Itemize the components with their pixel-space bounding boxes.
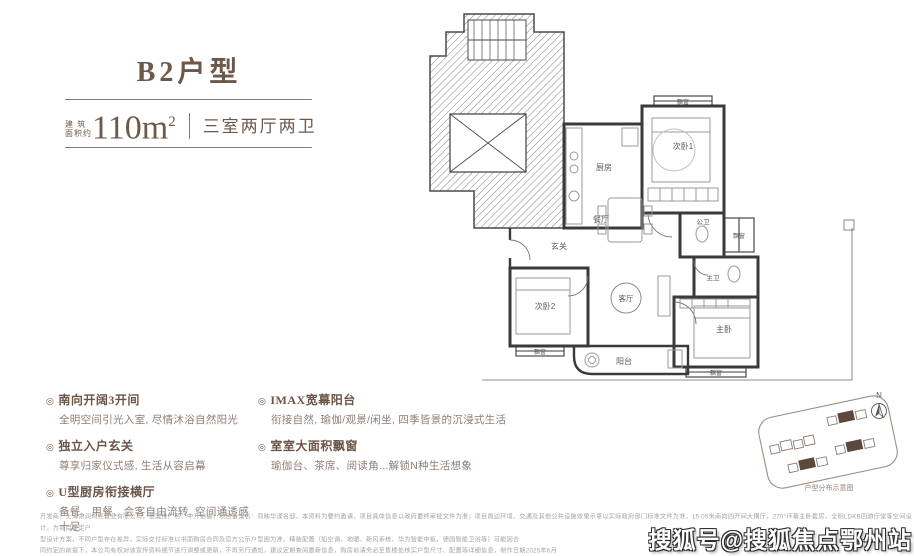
elevator-icon <box>450 114 526 172</box>
building-cluster <box>827 408 867 426</box>
feature-title: U型厨房衔接横厅 <box>58 485 155 499</box>
bullet-icon: ◎ <box>258 442 266 452</box>
header-divider-top <box>65 99 312 100</box>
flyer-page: B2户型 建 筑 面积约 110m2 三室两厅两卫 <box>0 0 914 556</box>
core-area <box>430 14 564 228</box>
feature-desc: 尊享归家仪式感, 生活从容启幕 <box>59 458 258 473</box>
feature-title: 室室大面积飘窗 <box>270 439 358 453</box>
bullet-icon: ◎ <box>258 396 266 406</box>
building-cluster <box>769 435 815 454</box>
feature-desc: 衔接自然, 瑜伽/观景/闲坐, 四季皆景的沉浸式生活 <box>271 412 518 427</box>
room-label-foyer: 玄关 <box>551 241 567 251</box>
stairs-icon <box>468 20 526 60</box>
area-prefix: 建 筑 面积约 <box>65 120 92 138</box>
siteplan-boundary <box>756 393 900 491</box>
siteplan-caption: 户型分布示意图 <box>805 483 854 492</box>
area-spec-row: 建 筑 面积约 110m2 三室两厅两卫 <box>65 103 317 145</box>
room-label-bay3: 飘窗 <box>534 348 546 356</box>
room-label-master: 主卧 <box>716 324 732 334</box>
room-label-bath-master: 主卫 <box>707 273 721 282</box>
layout-spec: 三室两厅两卫 <box>203 112 317 137</box>
feature-desc: 全明空间引光入室, 尽情沐浴自然阳光 <box>59 412 258 427</box>
area-exponent: 2 <box>168 114 176 130</box>
siteplan-diagram: 户型分布示意图 <box>748 390 910 494</box>
feature-item: ◎南向开阔3开间 全明空间引光入室, 尽情沐浴自然阳光 <box>46 391 258 427</box>
room-label-bedroom2: 次卧2 <box>535 301 556 311</box>
room-label-bedroom1: 次卧1 <box>673 141 694 151</box>
feature-item: ◎IMAX宽幕阳台 衔接自然, 瑜伽/观景/闲坐, 四季皆景的沉浸式生活 <box>258 391 518 427</box>
feature-title: 南向开阔3开间 <box>58 393 140 407</box>
header-vertical-divider <box>189 113 190 139</box>
building-cluster <box>787 455 827 473</box>
room-label-living: 客厅 <box>619 293 634 303</box>
header-divider-bottom <box>65 147 312 148</box>
sohu-watermark: 搜狐号@搜狐焦点鄂州站 <box>649 521 912 555</box>
room-label-kitchen: 厨房 <box>596 162 612 172</box>
floorplan-drawing: 厨房 餐厅 玄关 客厅 次卧1 次卧2 主卧 公卫 主卫 阳台 飘窗 飘窗 飘窗… <box>412 6 862 391</box>
bullet-icon: ◎ <box>46 396 54 406</box>
room-label-balcony: 阳台 <box>616 356 632 366</box>
room-label-bay1: 飘窗 <box>677 98 689 106</box>
room-label-bay2: 飘窗 <box>733 232 745 240</box>
room-label-bath-public: 公卫 <box>697 218 711 226</box>
feature-item: ◎独立入户玄关 尊享归家仪式感, 生活从容启幕 <box>46 437 258 473</box>
bullet-icon: ◎ <box>46 442 54 452</box>
feature-title: IMAX宽幕阳台 <box>270 393 355 407</box>
area-prefix-line1: 建 筑 <box>65 120 92 129</box>
feature-item: ◎室室大面积飘窗 瑜伽台、茶席、阅读角...解锁N种生活想象 <box>258 437 518 473</box>
area-value: 110m2 <box>92 105 176 145</box>
building-cluster <box>835 437 875 455</box>
room-label-dining: 餐厅 <box>593 215 609 224</box>
room-label-bay4: 飘窗 <box>710 369 722 377</box>
page-title: B2户型 <box>65 50 313 90</box>
bullet-icon: ◎ <box>46 488 54 498</box>
area-prefix-line2: 面积约 <box>65 129 92 138</box>
feature-desc: 瑜伽台、茶席、阅读角...解锁N种生活想象 <box>271 458 518 473</box>
features-right-column: ◎IMAX宽幕阳台 衔接自然, 瑜伽/观景/闲坐, 四季皆景的沉浸式生活 ◎室室… <box>258 391 518 483</box>
feature-title: 独立入户玄关 <box>58 439 133 453</box>
